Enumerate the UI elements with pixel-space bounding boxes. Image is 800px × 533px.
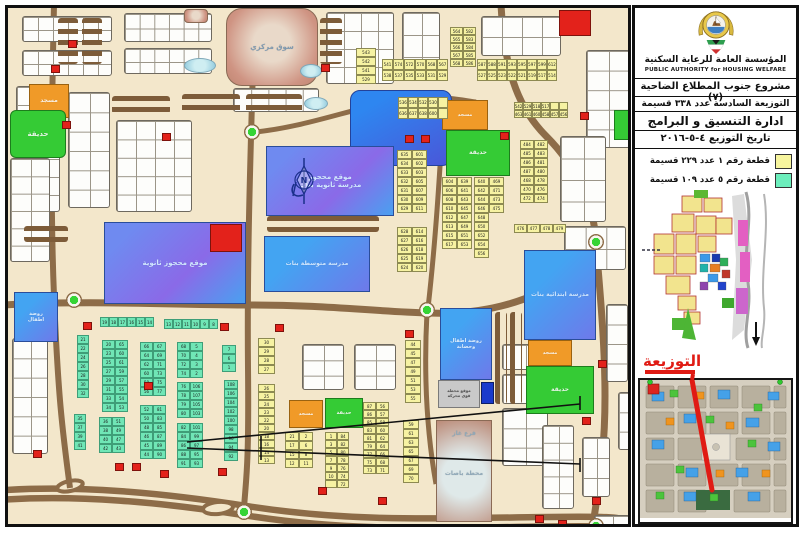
plot-cell: 599 (537, 59, 547, 70)
mosque-building-icon (160, 470, 169, 478)
plot-cell: 79 (363, 442, 376, 450)
mosque-building-icon (68, 40, 77, 48)
plot-cell: 640 (474, 177, 489, 186)
plot-cell: 75 (153, 378, 166, 387)
plot-cell: 630 (397, 195, 412, 204)
parking-row (82, 18, 102, 64)
mosque-building-icon (275, 324, 284, 332)
plot-grid-yellow: 59616365676970 (403, 420, 419, 483)
plot-cell: 100 (224, 416, 238, 425)
feature-label: مسجد (543, 350, 558, 356)
plot-cell: 457 (550, 110, 559, 118)
plot-cell: 57 (115, 376, 128, 385)
roundabout (244, 124, 260, 140)
plot-cell: 514 (547, 70, 557, 81)
plot-cell: 485 (520, 149, 534, 158)
feature-label: فرع غاز (452, 430, 476, 437)
plot-cell: 88 (177, 450, 190, 459)
plot-cell: 51 (405, 376, 421, 385)
feature-label: مسجد (40, 97, 58, 104)
legend-swatch-green (775, 173, 792, 188)
feature-girls-primary-school: مدرسة ابتدائية بنات (524, 250, 596, 340)
feature-gas-branch-label: فرع غاز (436, 428, 492, 440)
plot-grid-yellow: 4844824854834864814874804684784704764724… (520, 140, 548, 203)
feature-label: موقع محجوز مدرسة ثانوية بنات (299, 173, 362, 190)
plot-cell: 55 (115, 385, 128, 394)
feature-mosque-block: مسجد (289, 400, 323, 428)
plot-cell: 46 (140, 432, 153, 441)
plot-cell: 531 (426, 70, 437, 81)
plot-cell: 611 (412, 204, 427, 213)
plot-cell: 97 (190, 441, 203, 450)
mosque-building-icon (51, 65, 60, 73)
plot-cell: 73 (153, 369, 166, 378)
plot-block (481, 16, 561, 56)
plot-cell: 6 (222, 354, 236, 363)
mosque-building-icon (321, 64, 330, 72)
plot-cell: 522 (507, 70, 517, 81)
plot-cell: 478 (534, 176, 548, 185)
plot-cell: 39 (74, 432, 86, 441)
plot-cell: 624 (397, 263, 412, 272)
plot-cell: 10 (191, 319, 200, 329)
plot-cell: 91 (177, 459, 190, 468)
plot-block (68, 92, 110, 208)
plot-cell: 629 (397, 204, 412, 213)
plot-cell: 653 (457, 240, 472, 249)
plot-cell: 591 (497, 59, 507, 70)
district-map: سوق مركزيمسجدحديقةموقع محجوز مدرسة ثانوي… (5, 5, 631, 527)
plot-cell: 8 (299, 450, 313, 459)
plot-cell: 60 (140, 369, 153, 378)
plot-cell: 64 (376, 442, 389, 450)
plot-cell: 66 (140, 342, 153, 351)
plot-cell: 69 (403, 465, 419, 474)
plot-cell: 483 (534, 149, 548, 158)
plot-cell: 84 (177, 432, 190, 441)
plot-grid-yellow: 648650652654656 (474, 213, 489, 258)
plot-cell: 642 (474, 186, 489, 195)
plot-cell: 94 (224, 443, 238, 452)
plot-cell: 474 (534, 194, 548, 203)
plot-cell: 542 (514, 102, 523, 110)
plot-cell (438, 108, 448, 119)
plot-cell: 628 (397, 227, 412, 236)
plot-cell: 87 (363, 402, 376, 410)
plot-cell: 49 (112, 426, 125, 435)
plot-cell: 70 (403, 474, 419, 483)
plot-cell: 605 (412, 177, 427, 186)
plot-cell: 9 (200, 319, 209, 329)
plot-cell: 12 (173, 319, 182, 329)
mosque-building-icon (580, 112, 589, 120)
plot-block (542, 425, 574, 509)
plot-grid-green: 3651384940474243 (99, 417, 125, 453)
plot-cell: 627 (397, 236, 412, 245)
plot-cell: 651 (457, 231, 472, 240)
plot-cell: 106 (224, 389, 238, 398)
mosque-building-icon (405, 135, 414, 143)
plot-cell: 473 (489, 195, 504, 204)
plot-cell: 45 (405, 349, 421, 358)
plot-cell: 601 (412, 150, 427, 159)
plot-cell: 477 (527, 224, 540, 233)
plot-grid-yellow: 184382580778976107472 (325, 432, 349, 488)
plot-cell: 484 (520, 140, 534, 149)
plot-cell: 469 (489, 177, 504, 186)
plot-cell: 525 (487, 70, 497, 81)
plot-grid-yellow: 26252423222018161413 (258, 384, 275, 464)
plot-cell: 3 (190, 360, 203, 369)
roundabout (588, 234, 604, 250)
plot-cell: 517 (537, 70, 547, 81)
plot-cell: 603 (412, 168, 427, 177)
plot-cell: 645 (457, 204, 472, 213)
plot-cell: 648 (474, 213, 489, 222)
plot-cell: 53 (405, 385, 421, 394)
plot-cell: 481 (534, 158, 548, 167)
plot-cell: 26 (77, 362, 89, 371)
plot-cell: 38 (99, 426, 112, 435)
plot-cell: 15 (136, 317, 145, 327)
plot-cell: 49 (405, 367, 421, 376)
plot-cell: 71 (376, 466, 389, 474)
plot-cell: 101 (190, 423, 203, 432)
plot-cell: 76 (337, 464, 349, 472)
roundabout (236, 504, 252, 520)
plot-grid-green: 821018499869788959193 (177, 423, 203, 468)
parking-row (267, 216, 379, 232)
plot-cell: 649 (457, 222, 472, 231)
plot-cell: 70 (177, 351, 190, 360)
plot-grid-green: 1312111098 (164, 319, 218, 329)
mosque-building-icon (318, 487, 327, 495)
plot-cell: 72 (177, 360, 190, 369)
feature-small-market-block (184, 9, 208, 23)
plot-cell: 612 (442, 213, 457, 222)
plot-cell: 20 (102, 340, 115, 349)
plot-cell: 5 (325, 448, 337, 456)
plot-cell: 647 (457, 213, 472, 222)
plot-cell: 22 (258, 416, 275, 424)
plot-cell: 570 (415, 59, 426, 70)
plot-block (354, 344, 396, 390)
mosque-building-icon (582, 417, 591, 425)
plot-cell: 51 (112, 417, 125, 426)
plot-cell: 102 (224, 407, 238, 416)
plot-cell: 13 (258, 456, 275, 464)
plot-cell: 476 (534, 185, 548, 194)
plot-cell: 28 (77, 371, 89, 380)
plot-cell: 532 (418, 97, 428, 108)
plot-cell: 41 (74, 441, 86, 450)
plot-cell: 615 (442, 231, 457, 240)
plot-grid-green: 21222426283032 (77, 335, 89, 398)
plot-cell: 538 (382, 70, 393, 81)
plot-cell: 27 (102, 367, 115, 376)
mosque-building-icon (598, 360, 607, 368)
plot-cell: 81 (153, 405, 166, 414)
plot-cell: 638 (418, 108, 428, 119)
plot-cell: 634 (397, 159, 412, 168)
plot-cell: 69 (153, 351, 166, 360)
plot-cell: 632 (397, 177, 412, 186)
feature-reserved-girls-secondary-school: موقع محجوز مدرسة ثانوية بنات (266, 146, 394, 216)
plot-cell: 537 (393, 70, 404, 81)
feature-kindergarten-west: روضة اطفال (14, 292, 58, 342)
plot-cell: 600 (428, 108, 438, 119)
plot-cell: 104 (224, 398, 238, 407)
plot-cell: 68 (177, 342, 190, 351)
plot-cell: 568 (426, 59, 437, 70)
plot-cell: 43 (112, 444, 125, 453)
mosque-building-icon (220, 323, 229, 331)
plot-cell: 8 (209, 319, 218, 329)
plot-cell: 57 (376, 410, 389, 418)
plot-cell: 65 (403, 447, 419, 456)
plot-cell: 78 (177, 391, 190, 400)
parking-row (182, 94, 240, 114)
feature-girls-middle-school: مدرسة متوسطة بنات (264, 236, 370, 292)
feature-kindergarten: روضة اطفال وحضانة (440, 308, 492, 380)
plot-cell: 77 (153, 387, 166, 396)
plot-cell: 44 (405, 340, 421, 349)
plot-cell: 535 (404, 70, 415, 81)
plot-block (116, 120, 192, 212)
plot-cell: 614 (412, 227, 427, 236)
plot-block (560, 136, 606, 222)
plot-cell: 582 (463, 27, 476, 35)
plot-cell: 583 (463, 35, 476, 43)
plot-cell: 18 (258, 432, 275, 440)
plot-cell: 567 (450, 51, 463, 59)
plot-cell: 9 (325, 464, 337, 472)
plot-cell: 541 (356, 66, 376, 75)
mosque-building-icon (162, 133, 171, 141)
plot-cell: 12 (285, 459, 299, 468)
plot-cell: 529 (523, 102, 532, 110)
plot-cell: 40 (99, 435, 112, 444)
plot-cell: 105 (190, 400, 203, 409)
org-name-arabic: المؤسسة العامة للرعاية السكنية (635, 55, 796, 65)
plot-block (582, 437, 610, 497)
feature-label: سوق مركزي (250, 43, 294, 51)
plot-cell: 93 (190, 459, 203, 468)
plot-cell: 486 (520, 158, 534, 167)
plot-cell: 22 (77, 344, 89, 353)
plot-cell: 3 (325, 440, 337, 448)
plot-cell: 60 (376, 426, 389, 434)
feature-bus-station-label: محطة باصات (436, 468, 492, 480)
plot-cell: 17 (118, 317, 127, 327)
parking-row (112, 96, 170, 114)
plot-cell: 517 (541, 102, 550, 110)
feature-red-facility (559, 10, 591, 36)
plot-cell: 77 (363, 450, 376, 458)
plot-cell: 59 (115, 367, 128, 376)
plot-cell: 65 (115, 340, 128, 349)
plot-cell: 456 (559, 110, 568, 118)
plot-cell: 625 (397, 254, 412, 263)
plot-cell: 24 (77, 353, 89, 362)
plot-cell: 2 (299, 432, 313, 441)
feature-pond (184, 58, 216, 73)
plot-cell: 16 (258, 440, 275, 448)
master-plan-minimap (638, 190, 793, 350)
plot-cell: 461 (523, 110, 532, 118)
plot-cell: 530 (428, 97, 438, 108)
plot-cell: 67 (153, 342, 166, 351)
plot-cell (438, 97, 448, 108)
plot-cell: 613 (442, 222, 457, 231)
mosque-building-icon (115, 463, 124, 471)
plot-cell: 636 (398, 108, 408, 119)
parking-row (495, 312, 507, 404)
plot-cell: 476 (514, 224, 527, 233)
feature-utility-block (481, 382, 494, 404)
feature-label: حديقة (469, 149, 487, 156)
mosque-building-icon (33, 450, 42, 458)
plot-cell: 90 (153, 450, 166, 459)
housing-distribution-sheet: سوق مركزيمسجدحديقةموقع محجوز مدرسة ثانوي… (0, 0, 800, 533)
plot-cell: 58 (376, 418, 389, 426)
roundabout (66, 292, 82, 308)
plot-cell: 5 (190, 342, 203, 351)
plot-cell: 79 (177, 400, 190, 409)
plot-cell: 7 (325, 456, 337, 464)
plot-cell: 588 (487, 59, 497, 70)
plot-cell: 7 (222, 345, 236, 354)
plot-cell: 482 (534, 140, 548, 149)
plot-cell: 86 (363, 410, 376, 418)
plot-cell: 637 (408, 108, 418, 119)
plot-grid-yellow: 875686578558836081627964776675687371 (363, 402, 389, 474)
distribution-date: تاريخ التوزيع ٤-٥-٢٠١٦ (635, 133, 796, 144)
plot-cell: 14 (258, 448, 275, 456)
plot-cell: 18 (109, 317, 118, 327)
plot-cell: 59 (403, 420, 419, 429)
plot-cell: 567 (437, 59, 448, 70)
plot-grid-green: 35373941 (74, 414, 86, 450)
feature-label: مسجد (299, 411, 314, 417)
feature-mosque-block: مسجد (442, 100, 488, 130)
plot-grid-yellow: 476477478479 (514, 224, 566, 233)
plot-cell: 29 (102, 376, 115, 385)
plot-cell: 17 (285, 441, 299, 450)
plot-grid-yellow: 640469642471644473646475 (474, 177, 504, 213)
plot-cell: 25 (258, 392, 275, 400)
mosque-building-icon (405, 330, 414, 338)
plot-cell: 584 (463, 43, 476, 51)
plot-cell: 595 (517, 59, 527, 70)
plot-grid-yellow: 5875885915935955975996125275255235225215… (477, 59, 557, 81)
plot-cell: 460 (532, 110, 541, 118)
plot-cell: 83 (363, 426, 376, 434)
feature-label: حديقة (337, 410, 352, 416)
plot-grid-yellow: 6356016346026336036326056316076306096296… (397, 150, 427, 213)
plot-cell: 63 (403, 438, 419, 447)
plot-cell: 644 (474, 195, 489, 204)
plot-cell: 479 (553, 224, 566, 233)
plot-cell: 30 (77, 380, 89, 389)
feature-label: موقع محطة قوى محركة (447, 389, 470, 399)
plot-cell: 62 (140, 360, 153, 369)
legend-item-block5: قطعة رقم ٥ عدد ١٠٩ قسيمة (639, 171, 792, 189)
plot-block (618, 392, 631, 450)
feature-label: روضة اطفال (28, 311, 44, 323)
parking-row (246, 94, 302, 114)
plot-cell: 574 (393, 59, 404, 70)
plot-cell: 1 (222, 363, 236, 372)
title-panel: المؤسسة العامة للرعاية السكنية PUBLIC AU… (632, 5, 799, 527)
plot-cell: 606 (442, 186, 457, 195)
plot-cell: 85 (153, 423, 166, 432)
plot-grid-yellow: 30292827 (258, 338, 275, 374)
plot-cell: 44 (140, 450, 153, 459)
plot-cell: 68 (376, 458, 389, 466)
plot-cell: 86 (177, 441, 190, 450)
plot-grid-green: 685704723742 (177, 342, 203, 378)
plot-cell: 66 (376, 450, 389, 458)
mosque-building-icon (62, 121, 71, 129)
plot-cell: 106 (190, 382, 203, 391)
plot-cell: 565 (450, 35, 463, 43)
plot-cell: 20 (258, 424, 275, 432)
plot-grid-yellow: 541574572570568567538537535533531529 (382, 59, 448, 81)
plot-grid-green: 528150834885468745894490 (140, 405, 166, 459)
roundabout (588, 518, 604, 527)
plot-cell: 602 (412, 159, 427, 168)
plot-cell: 523 (497, 70, 507, 81)
mosque-building-icon (83, 322, 92, 330)
plot-cell: 15 (285, 450, 299, 459)
parking-row (510, 312, 522, 404)
plot-cell: 82 (177, 423, 190, 432)
plot-cell: 626 (397, 245, 412, 254)
plot-cell: 472 (520, 194, 534, 203)
plot-cell: 650 (474, 222, 489, 231)
feature-label: موقع محجوز ثانوية (143, 259, 208, 267)
plot-grid-yellow: 628614627616626618625619624620 (397, 227, 427, 272)
plot-cell: 47 (405, 358, 421, 367)
plot-cell: 533 (415, 70, 426, 81)
plot-cell: 6 (299, 441, 313, 450)
plot-cell: 54 (115, 394, 128, 403)
plot-block (606, 304, 628, 382)
plot-cell: 518 (532, 102, 541, 110)
feature-label: مدرسة متوسطة بنات (286, 260, 349, 267)
roundabout (419, 302, 435, 318)
plot-cell: 73 (363, 466, 376, 474)
mosque-building-icon (500, 132, 509, 140)
plot-cell: 64 (140, 351, 153, 360)
plot-cell: 27 (258, 365, 275, 374)
plot-cell: 633 (397, 168, 412, 177)
district-overview-minimap (638, 378, 793, 524)
feature-label: روضة اطفال وحضانة (450, 338, 482, 350)
plot-cell: 96 (224, 434, 238, 443)
plot-grid-yellow: 543542541529 (356, 48, 376, 84)
plot-cell: 529 (437, 70, 448, 81)
plot-grid-yellow: 2121761581211 (285, 432, 313, 468)
location-pointer-label: التوزيعة (643, 352, 701, 370)
plot-cell: 74 (177, 369, 190, 378)
legend-label: قطعة رقم ١ عدد ٢٢٩ قسيمة (650, 156, 770, 166)
plot-block (302, 344, 344, 390)
plot-cell: 654 (474, 240, 489, 249)
plot-cell: 480 (534, 167, 548, 176)
plot-cell: 67 (403, 456, 419, 465)
